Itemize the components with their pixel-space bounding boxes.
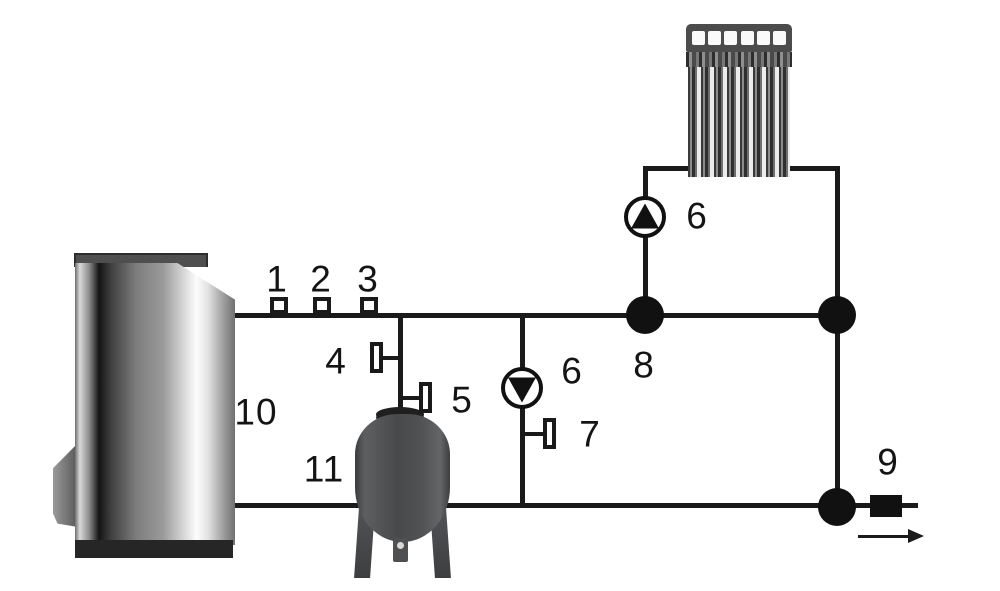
label-5: 5	[451, 382, 473, 419]
label-3: 3	[357, 261, 379, 298]
pipe-stub-valve4	[381, 356, 401, 360]
label-7: 7	[579, 416, 601, 453]
junction-dot-8	[626, 296, 664, 334]
flow-arrow	[858, 535, 910, 538]
boiler-base	[75, 540, 233, 558]
valve-7-icon	[543, 418, 556, 449]
valve-5-icon	[419, 382, 432, 413]
square-fitting-2-icon	[313, 297, 331, 314]
label-6-boiler-pump: 6	[686, 198, 708, 235]
radiator-header-slot	[757, 31, 770, 45]
pipe-boiler-pump-riser	[643, 166, 648, 316]
junction-dot-right-bottom	[818, 488, 856, 526]
junction-dot-right-top	[818, 296, 856, 334]
label-8: 8	[633, 347, 655, 384]
label-10: 10	[234, 394, 277, 431]
label-9: 9	[877, 444, 899, 481]
label-4: 4	[325, 343, 347, 380]
label-11: 11	[304, 451, 344, 488]
radiator-header-slot	[773, 31, 786, 45]
radiator	[686, 24, 792, 177]
pump-boiler-loop-icon	[624, 196, 666, 238]
radiator-header	[686, 24, 792, 52]
valve-4-icon	[370, 342, 383, 373]
pump-triangle-up-icon	[631, 203, 659, 228]
expansion-tank-fitting	[393, 538, 408, 562]
radiator-fins	[688, 67, 790, 177]
square-fitting-1-icon	[270, 297, 288, 314]
boiler	[75, 263, 235, 545]
square-fitting-3-icon	[360, 297, 378, 314]
radiator-header-slot	[741, 31, 754, 45]
label-2: 2	[310, 261, 332, 298]
radiator-nut-row	[686, 52, 792, 67]
pipe-right-riser	[835, 166, 840, 508]
label-1: 1	[266, 261, 288, 298]
radiator-header-slot	[708, 31, 721, 45]
pump-circulation-icon	[501, 367, 543, 409]
label-6-circulation-pump: 6	[561, 353, 583, 390]
flow-arrow-head-icon	[908, 529, 924, 543]
pump-triangle-down-icon	[508, 378, 536, 403]
outlet-fitting	[870, 495, 902, 517]
pipe-pump-branch	[520, 315, 525, 505]
schematic-canvas: 1 2 3 4 5 6 7 8 6 9 10 11	[0, 0, 1000, 591]
pipe-radiator-return	[790, 166, 840, 171]
boiler-bracket	[53, 443, 78, 527]
expansion-tank	[355, 414, 450, 542]
radiator-header-slot	[724, 31, 737, 45]
pipe-return-bottom	[232, 503, 837, 508]
radiator-header-slot	[692, 31, 705, 45]
